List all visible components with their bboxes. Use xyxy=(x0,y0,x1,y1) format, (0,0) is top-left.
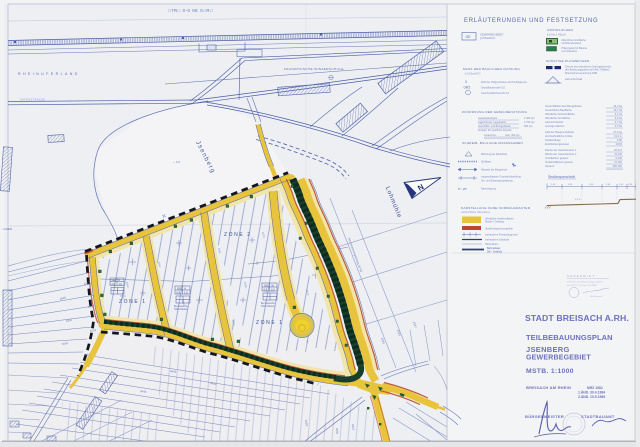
svg-text:GRÜNFLÄCHEN: GRÜNFLÄCHEN xyxy=(547,28,573,32)
svg-text:11,1 ha: 11,1 ha xyxy=(614,108,623,112)
svg-text:2,0: 2,0 xyxy=(271,287,275,291)
svg-text:3455: 3455 xyxy=(335,428,339,435)
svg-text:i.A. Brunner: i.A. Brunner xyxy=(590,295,602,298)
svg-text:Erschließungskosten: Erschließungskosten xyxy=(545,142,570,146)
svg-text:0,7 ha: 0,7 ha xyxy=(615,120,623,124)
svg-text:II: II xyxy=(465,80,467,84)
svg-text:Höhenlinien: Höhenlinien xyxy=(485,243,499,246)
svg-text:Anlagen für sportliche Zwecke: Anlagen für sportliche Zwecke xyxy=(478,129,512,132)
svg-text:5°- 25°: 5°- 25° xyxy=(458,187,468,191)
svg-text:SCHREIB- BAULICHE MASSNAHMEN: SCHREIB- BAULICHE MASSNAHMEN xyxy=(462,141,523,145)
svg-text:DB - Gelände: DB - Gelände xyxy=(487,250,503,253)
svg-text:1 750 qm: 1 750 qm xyxy=(524,121,534,124)
svg-text:1,5 ha: 1,5 ha xyxy=(615,124,623,128)
svg-text:GE: GE xyxy=(264,283,268,287)
svg-text:GE: GE xyxy=(177,286,181,290)
svg-text:Lärmschutzwall: Lärmschutzwall xyxy=(565,78,583,81)
svg-text:vorhandene Gebäude: vorhandene Gebäude xyxy=(485,239,510,242)
svg-text:TEILBEBAUUNGSPLAN: TEILBEBAUUNGSPLAN xyxy=(526,333,613,342)
svg-text:GE: GE xyxy=(112,278,116,282)
svg-text:II: II xyxy=(119,278,121,282)
svg-text:84 371: 84 371 xyxy=(614,148,622,152)
svg-text:JSENBERG: JSENBERG xyxy=(526,345,570,354)
svg-text:...CHEN: ...CHEN xyxy=(1,227,12,231)
svg-text:§ 8 BauNVO: § 8 BauNVO xyxy=(480,36,495,40)
svg-text:Abstand der Baugrenze: Abstand der Baugrenze xyxy=(481,169,508,172)
svg-text:mit Baumbestand: mit Baumbestand xyxy=(562,42,582,45)
svg-text:Lagerhäuser, Lagerplätze: Lagerhäuser, Lagerplätze xyxy=(478,121,507,124)
svg-text:Nr. 620-21 / 13 vom 2.10.198: Nr. 620-21 / 13 vom 2.10.1985 xyxy=(567,284,597,287)
svg-text:Fläche der Gewerbezone 1: Fläche der Gewerbezone 1 xyxy=(545,148,577,152)
svg-text:III: III xyxy=(272,283,275,287)
svg-text:Dachneigung: Dachneigung xyxy=(481,188,496,191)
svg-text:Gewerbliche Baufläche: Gewerbliche Baufläche xyxy=(545,108,572,112)
svg-text:BÜRGERMEISTER: BÜRGERMEISTER xyxy=(525,414,564,419)
svg-text:zusammen: zusammen xyxy=(484,134,497,137)
svg-text:Straße / Gehweg: Straße / Gehweg xyxy=(485,221,505,224)
svg-text:ZUORDNUNG DER GEBÄUDENUTZUNG: ZUORDNUNG DER GEBÄUDENUTZUNG xyxy=(462,110,528,114)
svg-text:0,8: 0,8 xyxy=(177,290,181,294)
svg-text:Stellplatz: Stellplatz xyxy=(481,161,492,164)
svg-text:2,1 ha: 2,1 ha xyxy=(615,112,623,116)
svg-text:FRANZÖSISCHE WINZERSCHULE: FRANZÖSISCHE WINZERSCHULE xyxy=(284,67,344,71)
svg-text:Grünflächen gesamt: Grünflächen gesamt xyxy=(545,156,569,160)
svg-text:Geschossflächenzahl 1,6: Geschossflächenzahl 1,6 xyxy=(481,92,510,95)
svg-text:SONSTIGE PLANZEICHEN: SONSTIGE PLANZEICHEN xyxy=(546,59,589,63)
svg-text:Hohe Bauten: Hohe Bauten xyxy=(261,305,276,308)
svg-text:DARSTELLUNG OHNE NORMCHARAKT: DARSTELLUNG OHNE NORMCHARAKTER xyxy=(461,206,531,210)
svg-text:öffentliche Verkehrsfläche: öffentliche Verkehrsfläche xyxy=(545,112,575,116)
svg-text:Straßenquerschnitt: Straßenquerschnitt xyxy=(548,175,575,179)
svg-text:II: II xyxy=(185,286,187,290)
svg-text:Gesamt: Gesamt xyxy=(545,164,554,168)
svg-text:Zahl der Vollgeschosse als Höc: Zahl der Vollgeschosse als Höchstgrenze xyxy=(481,81,527,84)
svg-text:vorgeschlagene Grundstücksteil: vorgeschlagene Grundstücksteilung xyxy=(481,176,521,179)
svg-text:Geschäfts- und Bürogebäude: Geschäfts- und Bürogebäude xyxy=(478,125,511,128)
svg-text:Fläche der Gewerbezone 2: Fläche der Gewerbezone 2 xyxy=(545,152,577,156)
svg-text:Gewerbebetriebe: Gewerbebetriebe xyxy=(478,117,498,120)
svg-text:3457: 3457 xyxy=(351,424,355,431)
svg-text:max. 300 qm: max. 300 qm xyxy=(505,134,519,137)
svg-text:ZONE 1: ZONE 1 xyxy=(256,320,284,326)
svg-text:Straßenbegrenzungslinie: Straßenbegrenzungslinie xyxy=(485,227,513,230)
svg-text:GRZ: GRZ xyxy=(464,86,471,90)
svg-text:Planzeichenverordnung 1981: Planzeichenverordnung 1981 xyxy=(565,72,598,75)
svg-text:MRZ 1981: MRZ 1981 xyxy=(587,386,603,390)
svg-text:2,5 %: 2,5 % xyxy=(575,199,581,201)
svg-text:9 440: 9 440 xyxy=(616,156,623,160)
svg-text:MASS DER BAULICHEN NUTZUNG: MASS DER BAULICHEN NUTZUNG xyxy=(463,67,520,71)
svg-text:HAFENSTRASSE: HAFENSTRASSE xyxy=(20,99,45,102)
svg-text:Verkehrsflächen gesamt: Verkehrsflächen gesamt xyxy=(545,160,573,164)
svg-text:Straßenlänge: Straßenlänge xyxy=(545,138,561,142)
svg-text:STADTBAUAMT: STADTBAUAMT xyxy=(581,414,615,419)
svg-text:ZONE 2: ZONE 2 xyxy=(224,232,252,238)
svg-text:BREISACH AM RHEIN: BREISACH AM RHEIN xyxy=(526,385,571,390)
svg-text:16,3 ha: 16,3 ha xyxy=(613,104,622,108)
svg-text:ZONE 1: ZONE 1 xyxy=(119,299,147,305)
svg-text:GE: GE xyxy=(466,35,472,39)
svg-text:RHEINUFERLAND: RHEINUFERLAND xyxy=(18,72,80,76)
svg-text:1.ÄND. 30.4.1984: 1.ÄND. 30.4.1984 xyxy=(578,391,605,395)
svg-text:STADT BREISACH A.RH.: STADT BREISACH A.RH. xyxy=(525,313,629,323)
svg-text:Hohe Bauten: Hohe Bauten xyxy=(174,308,189,311)
svg-text:2.ÄND. 10.5.1985: 2.ÄND. 10.5.1985 xyxy=(578,395,605,399)
svg-text:vorhandene Flurstücksgrenze: vorhandene Flurstücksgrenze xyxy=(485,234,519,237)
svg-text:2 400 qm: 2 400 qm xyxy=(524,117,534,120)
svg-text:156 181: 156 181 xyxy=(613,164,623,168)
svg-text:nachrichtliche Übernahme: nachrichtliche Übernahme xyxy=(461,211,491,214)
svg-text:6,50: 6,50 xyxy=(617,138,623,142)
svg-text:öffentliche Grünfläche: öffentliche Grünfläche xyxy=(545,116,571,120)
svg-text:Grundflächenzahl 0,8: Grundflächenzahl 0,8 xyxy=(481,87,505,90)
svg-text:900 qm: 900 qm xyxy=(524,125,532,128)
svg-text:GENEHMIGT: GENEHMIGT xyxy=(567,274,595,278)
svg-text:§ 16 BauNVO: § 16 BauNVO xyxy=(465,73,480,76)
svg-text:10,60: 10,60 xyxy=(616,142,623,146)
svg-text:und Sträucher: und Sträucher xyxy=(562,50,578,53)
svg-text:ERLÄUTERUNGEN UND FESTSETZUN: ERLÄUTERUNGEN UND FESTSETZUNG xyxy=(464,17,598,24)
svg-text:□7R□ 0-0 0E 0□R□: □7R□ 0-0 0E 0□R□ xyxy=(168,8,213,13)
svg-text:27,5 ha: 27,5 ha xyxy=(613,130,622,134)
svg-text:1,6: 1,6 xyxy=(184,290,188,294)
svg-text:sonstige Flächen: sonstige Flächen xyxy=(545,124,565,128)
svg-text:21 150: 21 150 xyxy=(614,160,622,164)
svg-text:GEWERBEGEBIET: GEWERBEGEBIET xyxy=(480,33,504,37)
svg-text:4057: 4057 xyxy=(84,352,91,357)
svg-text:Richtung der Dachfirste: Richtung der Dachfirste xyxy=(481,153,508,156)
svg-text:Ver- und Entsorgungsleitung: Ver- und Entsorgungsleitung xyxy=(481,180,513,183)
svg-text:41 220: 41 220 xyxy=(614,152,622,156)
svg-text:+ 191: + 191 xyxy=(173,160,181,164)
svg-text:MSTB. 1:1000: MSTB. 1:1000 xyxy=(526,368,574,375)
svg-text:mit Erlass des Regierungspräsi: mit Erlass des Regierungspräsidiums xyxy=(567,281,604,284)
svg-text:Lärmschutzwall: Lärmschutzwall xyxy=(545,120,563,124)
svg-text:0,8: 0,8 xyxy=(264,287,268,291)
svg-text:§ 9 Abs.1 BBauG: § 9 Abs.1 BBauG xyxy=(547,34,566,37)
svg-text:13,1 m: 13,1 m xyxy=(614,134,622,138)
svg-text:Gesamtfläche des Plangebietes: Gesamtfläche des Plangebietes xyxy=(545,104,582,108)
svg-text:durchschnittliche Größe: durchschnittliche Größe xyxy=(545,134,573,138)
svg-text:Zahl der Baugrundstücke: Zahl der Baugrundstücke xyxy=(545,130,575,134)
svg-text:0,9 ha: 0,9 ha xyxy=(615,116,623,120)
svg-text:GEWERBEGEBIET: GEWERBEGEBIET xyxy=(526,355,591,362)
